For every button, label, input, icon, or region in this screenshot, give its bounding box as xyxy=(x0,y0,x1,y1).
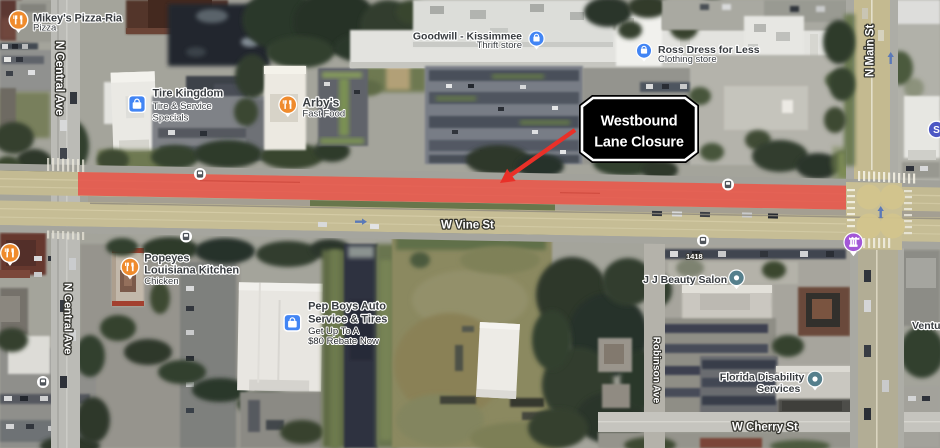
svg-text:Fast Food: Fast Food xyxy=(302,109,345,120)
svg-text:W Cherry St: W Cherry St xyxy=(732,422,798,434)
svg-text:Pizza: Pizza xyxy=(33,23,57,34)
svg-text:Ventura: Ventura xyxy=(912,320,940,332)
svg-text:Services: Services xyxy=(757,383,800,395)
svg-text:N Central Ave: N Central Ave xyxy=(62,283,74,354)
svg-text:Lane Closure: Lane Closure xyxy=(594,135,684,151)
svg-text:Chicken: Chicken xyxy=(144,276,178,287)
svg-text:Louisiana Kitchen: Louisiana Kitchen xyxy=(144,265,239,277)
svg-text:Thrift store: Thrift store xyxy=(477,40,522,51)
svg-text:N Central Ave: N Central Ave xyxy=(53,41,65,116)
svg-text:Pep Boys Auto: Pep Boys Auto xyxy=(308,300,386,312)
svg-text:Popeyes: Popeyes xyxy=(144,253,189,265)
svg-text:Tire & Service: Tire & Service xyxy=(153,101,212,112)
svg-text:Clothing store: Clothing store xyxy=(658,54,717,65)
svg-text:$80 Rebate Now: $80 Rebate Now xyxy=(308,336,379,347)
svg-text:Westbound: Westbound xyxy=(601,114,678,130)
svg-text:Specials: Specials xyxy=(153,113,189,124)
svg-text:J J Beauty Salon: J J Beauty Salon xyxy=(643,274,727,286)
svg-text:1418: 1418 xyxy=(686,252,703,261)
svg-text:Robinson Ave: Robinson Ave xyxy=(651,337,662,404)
svg-text:S: S xyxy=(933,125,940,136)
svg-text:W Vine St: W Vine St xyxy=(441,219,494,231)
svg-text:Service & Tires: Service & Tires xyxy=(308,313,387,325)
svg-text:Tire Kingdom: Tire Kingdom xyxy=(153,87,224,99)
svg-text:Florida Disability: Florida Disability xyxy=(720,372,805,384)
svg-text:N Main St: N Main St xyxy=(865,24,877,77)
